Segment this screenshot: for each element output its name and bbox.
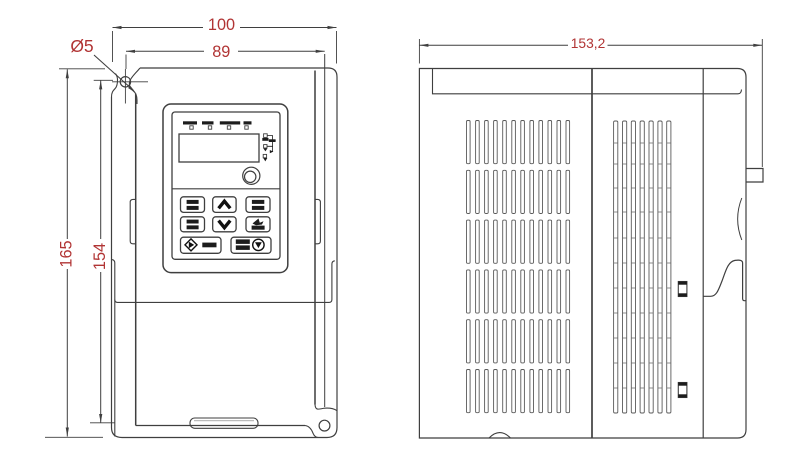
- svg-text:100: 100: [208, 16, 235, 34]
- svg-text:153,2: 153,2: [571, 36, 606, 51]
- svg-text:154: 154: [91, 243, 109, 270]
- svg-text:89: 89: [212, 43, 230, 61]
- svg-text:165: 165: [58, 240, 76, 267]
- svg-text:Ø5: Ø5: [70, 36, 93, 56]
